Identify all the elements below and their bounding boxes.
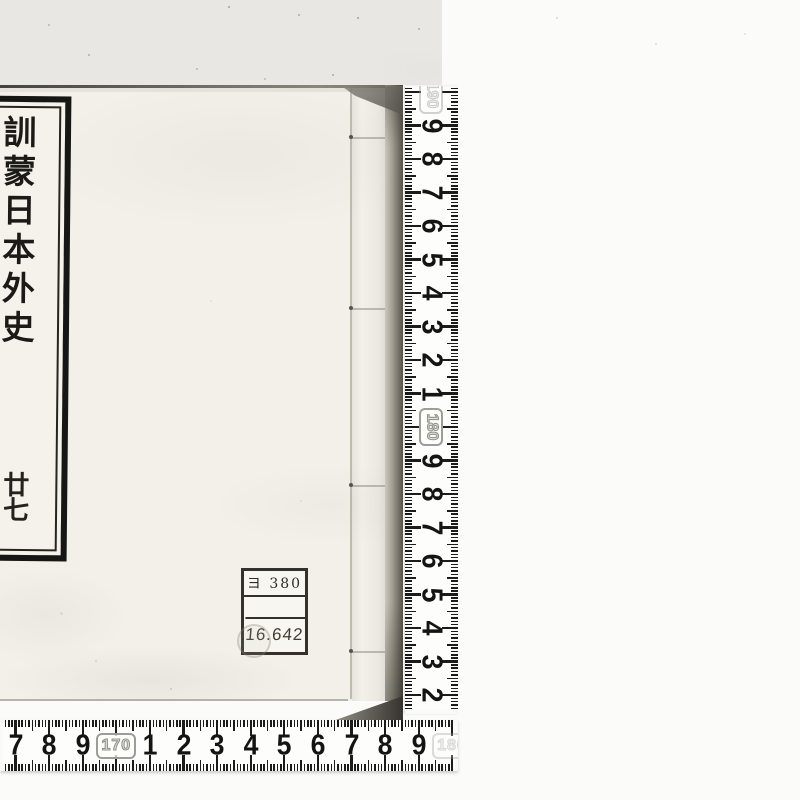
tape-number: 4 — [415, 286, 448, 301]
mm-tick — [122, 764, 124, 771]
mm-tick — [321, 720, 323, 727]
mm-tick — [213, 764, 215, 771]
mm-tick — [405, 647, 412, 649]
mm-tick — [405, 111, 412, 113]
mm-tick — [354, 764, 356, 771]
mm-tick — [388, 764, 390, 771]
dust-speck — [48, 24, 50, 26]
mm-tick — [405, 306, 412, 308]
mm-tick — [451, 487, 458, 489]
mm-tick — [405, 252, 412, 254]
mm-tick — [196, 720, 198, 727]
mm-tick — [52, 764, 54, 771]
mm-tick — [451, 286, 458, 288]
mm-tick — [451, 580, 458, 582]
mm-tick — [405, 215, 412, 217]
volume-char: 七 — [3, 499, 29, 524]
mm-tick — [58, 720, 60, 727]
mm-tick — [405, 101, 412, 103]
mm-tick — [92, 764, 94, 771]
mm-tick — [447, 376, 458, 378]
mm-tick — [277, 720, 279, 727]
mm-tick — [371, 764, 373, 771]
mm-tick — [405, 477, 416, 479]
mm-tick — [153, 720, 155, 727]
mm-tick — [378, 720, 380, 727]
mm-tick — [451, 614, 458, 616]
mm-tick — [451, 708, 458, 710]
mm-tick — [126, 764, 128, 771]
mm-tick — [220, 720, 222, 727]
dust-speck — [357, 17, 359, 19]
mm-tick — [405, 520, 412, 522]
mm-tick — [405, 637, 412, 639]
mm-tick — [448, 764, 450, 771]
mm-tick — [405, 353, 412, 355]
mm-tick — [405, 319, 412, 321]
mm-tick — [21, 720, 23, 727]
tape-number: 7 — [415, 520, 448, 535]
mm-tick — [200, 720, 202, 731]
tape-number: 9 — [415, 453, 448, 468]
mm-tick — [75, 720, 77, 727]
mm-tick — [445, 720, 447, 727]
mm-tick — [451, 322, 458, 324]
mm-tick — [169, 764, 171, 771]
mm-tick — [112, 720, 114, 727]
mm-tick — [109, 720, 111, 727]
mm-tick — [405, 282, 412, 284]
mm-tick — [206, 720, 208, 727]
mm-tick — [405, 255, 412, 257]
mm-tick — [307, 764, 309, 771]
mm-tick — [405, 155, 412, 157]
mm-tick — [405, 339, 412, 341]
mm-tick — [368, 720, 370, 731]
mm-tick — [405, 413, 412, 415]
mm-tick — [405, 678, 416, 680]
mm-tick — [294, 764, 296, 771]
mm-tick — [119, 764, 121, 771]
mm-tick — [405, 322, 412, 324]
mm-tick — [451, 299, 458, 301]
mm-tick — [451, 657, 458, 659]
mm-tick — [223, 764, 225, 771]
mm-tick — [451, 332, 458, 334]
mm-tick — [45, 764, 47, 771]
mm-tick — [361, 720, 363, 727]
mm-tick — [331, 764, 333, 771]
mm-tick — [405, 245, 412, 247]
mm-tick — [405, 698, 412, 700]
mm-tick — [451, 533, 458, 535]
mm-tick — [25, 764, 27, 771]
mm-tick — [405, 416, 412, 418]
mm-tick — [405, 302, 412, 304]
mm-tick — [240, 720, 242, 727]
mm-tick — [447, 577, 458, 579]
mm-tick — [55, 764, 57, 771]
mm-tick — [451, 624, 458, 626]
mm-tick — [405, 296, 412, 298]
stitch-hole — [349, 135, 353, 139]
mm-tick — [405, 128, 412, 130]
mm-tick — [451, 490, 458, 492]
mm-tick — [381, 720, 383, 727]
mm-tick — [428, 764, 430, 771]
title-char: 日 — [3, 194, 36, 228]
mm-tick — [405, 487, 412, 489]
mm-tick — [451, 497, 458, 499]
mm-tick — [237, 720, 239, 727]
mm-tick — [290, 764, 292, 771]
mm-tick — [447, 142, 458, 144]
mm-tick — [405, 587, 412, 589]
mm-tick — [226, 764, 228, 771]
mm-tick — [203, 720, 205, 727]
mm-tick — [233, 720, 235, 731]
mm-tick — [405, 584, 412, 586]
mm-tick — [18, 764, 20, 771]
mm-tick — [451, 346, 458, 348]
mm-tick — [451, 547, 458, 549]
mm-tick — [447, 544, 458, 546]
tape-number: 3 — [415, 654, 448, 669]
mm-tick — [334, 720, 336, 731]
mm-tick — [273, 720, 275, 727]
mm-tick — [334, 760, 336, 771]
mm-tick — [105, 720, 107, 727]
mm-tick — [451, 664, 458, 666]
mm-tick — [451, 470, 458, 472]
mm-tick — [405, 369, 412, 371]
mm-tick — [398, 764, 400, 771]
stitch-hole — [349, 649, 353, 653]
mm-tick — [8, 720, 10, 727]
mm-tick — [28, 764, 30, 771]
mm-tick — [405, 664, 412, 666]
mm-tick — [405, 570, 412, 572]
mm-tick — [451, 634, 458, 636]
dust-speck — [60, 612, 63, 615]
mm-tick — [451, 128, 458, 130]
mm-tick — [321, 764, 323, 771]
mm-tick — [105, 764, 107, 771]
mm-tick — [451, 262, 458, 264]
mm-tick — [451, 540, 458, 542]
tape-number: 1 — [142, 730, 157, 763]
mm-tick — [136, 764, 138, 771]
mm-tick — [451, 570, 458, 572]
mm-tick — [451, 674, 458, 676]
mm-tick — [451, 574, 458, 576]
mm-tick — [411, 764, 413, 771]
mm-tick — [405, 704, 412, 706]
mm-tick — [405, 383, 412, 385]
mm-tick — [405, 219, 412, 221]
mm-tick — [163, 764, 165, 771]
mm-tick — [447, 242, 458, 244]
title-char: 蒙 — [3, 155, 36, 189]
mm-tick — [451, 205, 458, 207]
dust-speck — [418, 28, 420, 30]
mm-tick — [337, 720, 339, 727]
mm-tick — [451, 353, 458, 355]
dust-speck — [264, 78, 266, 80]
mm-tick — [405, 420, 412, 422]
mm-tick — [297, 764, 299, 771]
tape-number: 8 — [378, 730, 393, 763]
mm-tick — [270, 720, 272, 727]
mm-tick — [451, 420, 458, 422]
mm-tick — [441, 764, 443, 771]
mm-tick — [344, 764, 346, 771]
mm-tick — [405, 239, 412, 241]
mm-tick — [435, 760, 437, 771]
mm-tick — [451, 312, 458, 314]
mm-tick — [405, 399, 412, 401]
mm-tick — [405, 497, 412, 499]
mm-tick — [405, 131, 412, 133]
mm-tick — [451, 289, 458, 291]
mm-tick — [441, 720, 443, 727]
mm-tick — [451, 600, 458, 602]
mm-tick — [95, 720, 97, 727]
mm-tick — [451, 637, 458, 639]
mm-tick — [405, 684, 412, 686]
mm-tick — [25, 720, 27, 727]
mm-tick — [405, 433, 412, 435]
mm-tick — [361, 764, 363, 771]
mm-tick — [405, 265, 412, 267]
mm-tick — [451, 513, 458, 515]
mm-tick — [405, 403, 412, 405]
mm-tick — [405, 249, 412, 251]
tape-decade-badge-faint: 190 — [419, 86, 443, 114]
mm-tick — [405, 195, 412, 197]
mm-tick — [18, 720, 20, 727]
mm-tick — [451, 647, 458, 649]
mm-tick — [451, 379, 458, 381]
mm-tick — [451, 436, 458, 438]
mm-tick — [451, 463, 458, 465]
mm-tick — [5, 720, 7, 727]
mm-tick — [163, 720, 165, 727]
tape-number: 2 — [415, 353, 448, 368]
mm-tick — [257, 764, 259, 771]
mm-tick — [405, 135, 412, 137]
mm-tick — [401, 720, 403, 731]
mm-tick — [405, 533, 412, 535]
mm-tick — [230, 720, 232, 727]
mm-tick — [447, 209, 458, 211]
mm-tick — [11, 764, 13, 771]
mm-tick — [122, 720, 124, 727]
mm-tick — [451, 631, 458, 633]
vertical-measuring-tape: 98765432118098765432190 — [405, 86, 458, 714]
embossed-seal — [237, 624, 271, 658]
mm-tick — [451, 252, 458, 254]
mm-tick — [451, 691, 458, 693]
mm-tick — [451, 403, 458, 405]
mm-tick — [102, 764, 104, 771]
mm-tick — [451, 456, 458, 458]
mm-tick — [405, 279, 412, 281]
mm-tick — [451, 416, 458, 418]
mm-tick — [451, 249, 458, 251]
tape-number: 3 — [415, 319, 448, 334]
mm-tick — [99, 720, 101, 731]
mm-tick — [287, 764, 289, 771]
tape-number: 5 — [415, 252, 448, 267]
mm-tick — [260, 720, 262, 727]
dust-speck — [196, 68, 198, 70]
mm-tick — [451, 684, 458, 686]
mm-tick — [451, 111, 458, 113]
mm-tick — [186, 720, 188, 727]
tape-number: 2 — [415, 688, 448, 703]
mm-tick — [314, 720, 316, 727]
mm-tick — [331, 720, 333, 727]
mm-tick — [260, 764, 262, 771]
mm-tick — [277, 764, 279, 771]
mm-tick — [451, 681, 458, 683]
mm-tick — [394, 764, 396, 771]
dust-speck — [556, 17, 558, 19]
mm-tick — [451, 587, 458, 589]
mm-tick — [405, 138, 412, 140]
mm-tick — [451, 698, 458, 700]
mm-tick — [405, 463, 412, 465]
tape-number: 9 — [411, 730, 426, 763]
mm-tick — [451, 363, 458, 365]
mm-tick — [415, 720, 417, 727]
mm-tick — [431, 764, 433, 771]
mm-tick — [405, 440, 412, 442]
mm-tick — [405, 574, 412, 576]
mm-tick — [451, 641, 458, 643]
mm-tick — [85, 720, 87, 727]
mm-tick — [89, 720, 91, 727]
mm-tick — [425, 764, 427, 771]
mm-tick — [166, 720, 168, 731]
mm-tick — [451, 145, 458, 147]
mm-tick — [405, 212, 412, 214]
title-char: 史 — [1, 311, 34, 345]
mm-tick — [374, 764, 376, 771]
mm-tick — [451, 507, 458, 509]
mm-tick — [132, 760, 134, 771]
mm-tick — [21, 764, 23, 771]
mm-tick — [267, 760, 269, 771]
mm-tick — [431, 720, 433, 727]
tape-number: 5 — [277, 730, 292, 763]
mm-tick — [451, 564, 458, 566]
mm-tick — [405, 88, 412, 90]
mm-tick — [438, 764, 440, 771]
mm-tick — [405, 145, 412, 147]
mm-tick — [324, 720, 326, 727]
mm-tick — [405, 423, 412, 425]
mm-tick — [405, 611, 416, 613]
mm-tick — [300, 760, 302, 771]
spine-crease-line — [350, 88, 352, 699]
mm-tick — [405, 644, 416, 646]
mm-tick — [139, 764, 141, 771]
mm-tick — [405, 580, 412, 582]
mm-tick — [405, 349, 412, 351]
spine-fold-line — [352, 651, 385, 653]
mm-tick — [451, 366, 458, 368]
stitch-hole — [349, 483, 353, 487]
mm-tick — [405, 185, 412, 187]
mm-tick — [451, 349, 458, 351]
title-slip-volume: 廿七 — [0, 474, 37, 524]
mm-tick — [132, 720, 134, 731]
mm-tick — [129, 720, 131, 727]
mm-tick — [451, 269, 458, 271]
mm-tick — [398, 720, 400, 727]
mm-tick — [405, 343, 416, 345]
mm-tick — [405, 406, 412, 408]
mm-tick — [287, 720, 289, 727]
mm-tick — [451, 406, 458, 408]
mm-tick — [451, 523, 458, 525]
mm-tick — [405, 329, 412, 331]
mm-tick — [89, 764, 91, 771]
tape-number: 4 — [415, 621, 448, 636]
mm-tick — [405, 366, 412, 368]
title-char: 訓 — [3, 116, 36, 150]
mm-tick — [451, 704, 458, 706]
mm-tick — [405, 607, 412, 609]
mm-tick — [223, 720, 225, 727]
tape-number: 9 — [415, 118, 448, 133]
mm-tick — [447, 108, 458, 110]
mm-tick — [146, 764, 148, 771]
tape-decade-badge: 170 — [96, 733, 136, 759]
mm-tick — [451, 597, 458, 599]
mm-tick — [405, 631, 412, 633]
mm-tick — [405, 178, 412, 180]
mm-tick — [405, 95, 412, 97]
mm-tick — [405, 172, 412, 174]
mm-tick — [273, 764, 275, 771]
mm-tick — [35, 764, 37, 771]
mm-tick — [45, 720, 47, 727]
mm-tick — [169, 720, 171, 727]
mm-tick — [253, 720, 255, 727]
mm-tick — [374, 720, 376, 727]
dust-speck — [210, 300, 212, 302]
mm-tick — [405, 510, 416, 512]
book-bottom-edge — [0, 699, 348, 701]
mm-tick — [405, 162, 412, 164]
mm-tick — [263, 720, 265, 727]
mm-tick — [247, 720, 249, 727]
mm-tick — [357, 764, 359, 771]
mm-tick — [405, 165, 412, 167]
mm-tick — [324, 764, 326, 771]
spine-fold-line — [352, 137, 385, 139]
mm-tick — [310, 764, 312, 771]
mm-tick — [405, 503, 412, 505]
mm-tick — [451, 604, 458, 606]
mm-tick — [405, 396, 412, 398]
mm-tick — [179, 764, 181, 771]
mm-tick — [233, 760, 235, 771]
mm-tick — [226, 720, 228, 727]
